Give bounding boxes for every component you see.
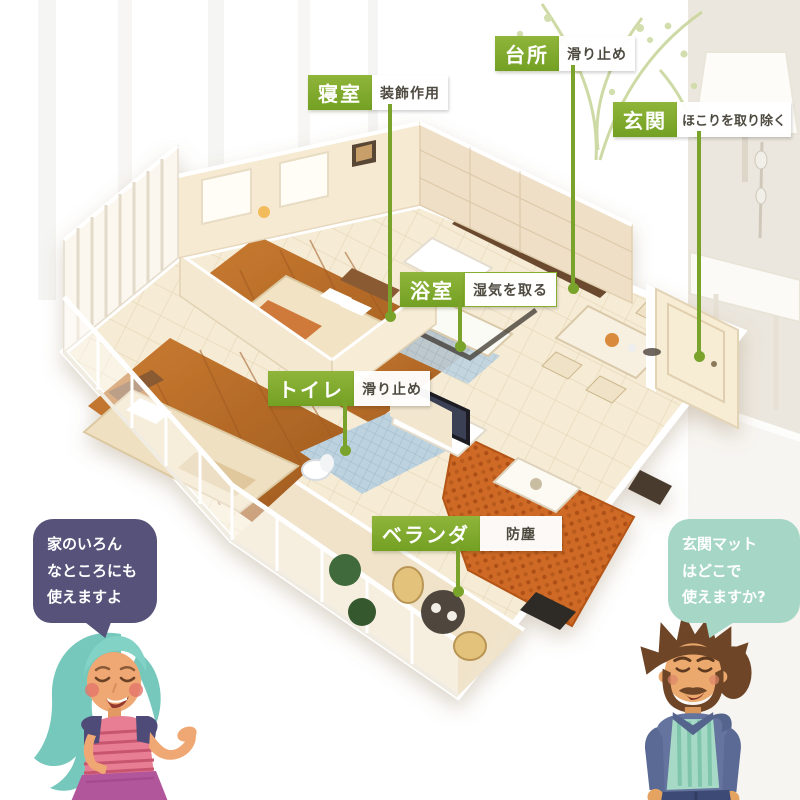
connector-dot xyxy=(385,311,396,322)
callout-veranda: ベランダ 防塵 xyxy=(372,516,562,551)
callout-bathroom: 浴室 湿気を取る xyxy=(400,272,557,307)
connector-line xyxy=(343,400,347,451)
callout-toilet: トイレ 滑り止め xyxy=(268,371,430,406)
callout-kitchen: 台所 滑り止め xyxy=(495,36,635,71)
speech-line: 使えますよ xyxy=(47,584,143,611)
note-label-bathroom: 湿気を取る xyxy=(464,272,557,307)
room-label-veranda: ベランダ xyxy=(372,516,480,551)
room-label-bathroom: 浴室 xyxy=(400,272,464,307)
connector-line xyxy=(388,104,392,317)
note-label-veranda: 防塵 xyxy=(480,516,562,551)
connector-dot xyxy=(694,351,705,362)
room-label-kitchen: 台所 xyxy=(495,36,559,71)
connector-dot xyxy=(340,445,351,456)
connector-line xyxy=(571,65,575,289)
product-infographic: 寝室 装飾作用 台所 滑り止め 玄関 ほこりを取り除く 浴室 湿気を取る トイレ… xyxy=(0,0,800,800)
door-mat xyxy=(643,348,661,356)
note-label-entrance: ほこりを取り除く xyxy=(677,102,791,137)
room-label-bedroom: 寝室 xyxy=(308,75,372,110)
room-label-entrance: 玄関 xyxy=(613,102,677,137)
room-label-toilet: トイレ xyxy=(268,371,354,406)
callout-entrance: 玄関 ほこりを取り除く xyxy=(613,102,791,137)
speech-line: はどこで xyxy=(682,558,786,585)
connector-dot xyxy=(455,341,466,352)
speech-line: なところにも xyxy=(47,558,143,585)
grandma-character xyxy=(26,612,200,800)
note-label-toilet: 滑り止め xyxy=(354,371,430,406)
wall-lamp xyxy=(258,206,270,218)
man-character xyxy=(616,606,778,800)
callout-bedroom: 寝室 装飾作用 xyxy=(308,75,448,110)
speech-bubble-right: 玄関マット はどこで 使えますか? xyxy=(668,519,800,623)
speech-line: 玄関マット xyxy=(682,531,786,558)
speech-line: 家のいろん xyxy=(47,531,143,558)
note-label-bedroom: 装飾作用 xyxy=(372,75,448,110)
speech-line: 使えますか? xyxy=(682,584,786,611)
connector-dot xyxy=(453,586,464,597)
connector-dot xyxy=(568,283,579,294)
speech-bubble-left: 家のいろん なところにも 使えますよ xyxy=(33,519,157,623)
connector-line xyxy=(697,131,701,357)
